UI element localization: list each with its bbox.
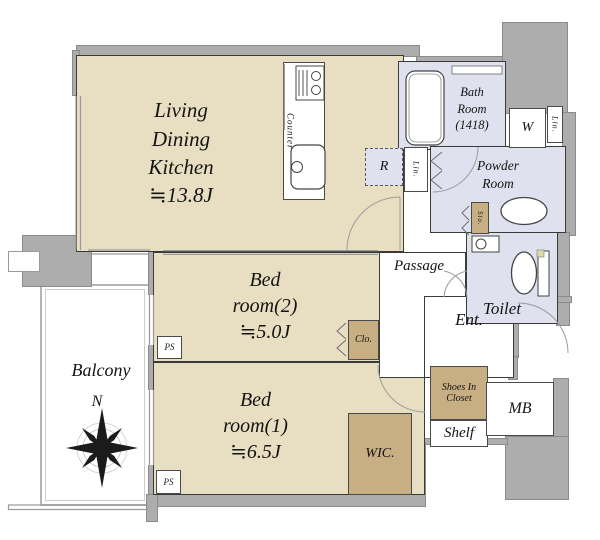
ldk-label: Living Dining Kitchen ≒13.8J (86, 78, 276, 228)
bath-label: Bath Room (1418) (440, 82, 504, 136)
linen-box-right: Lin. (547, 106, 563, 143)
shoes-label-2: Closet (446, 393, 472, 405)
counter-label: Counter (285, 113, 295, 150)
wic-label: WIC. (365, 446, 394, 462)
washer-label: W (522, 120, 534, 136)
meter-box: MB (486, 382, 554, 436)
bedroom1-label: Bed room(1) ≒6.5J (158, 370, 353, 482)
linen-left-label: Lin. (411, 161, 420, 178)
entrance-label: Ent. (432, 308, 506, 332)
washer-box: W (509, 108, 546, 148)
wall-block-bottom-right (505, 436, 569, 500)
wall-bottom (146, 494, 426, 507)
linen-right-label: Lin. (550, 116, 559, 133)
storage-small-box: Sto. (471, 202, 489, 234)
wic-box: WIC. (348, 413, 412, 495)
powder-label: Powder Room (438, 156, 558, 194)
meter-box-label: MB (508, 400, 531, 418)
bedroom2-area: ≒5.0J (240, 319, 291, 345)
storage-small-label: Sto. (476, 211, 484, 226)
passage-label: Passage (378, 255, 460, 277)
refrigerator-box: R (365, 148, 403, 186)
bedroom1-area: ≒6.5J (230, 439, 281, 465)
bedroom2-label: Bed room(2) ≒5.0J (165, 258, 365, 354)
wall-bottom-step (146, 494, 158, 522)
balcony-label: Balcony (55, 358, 147, 382)
ldk-area: ≒13.8J (149, 181, 213, 209)
shoes-in-closet-box: Shoes In Closet (430, 366, 488, 420)
shelf-label: Shelf (444, 425, 474, 442)
shelf-box: Shelf (430, 420, 488, 447)
refrigerator-label: R (380, 159, 389, 175)
linen-box-left: Lin. (404, 147, 428, 192)
shoes-label-1: Shoes In (442, 382, 476, 394)
pillar-notch (8, 251, 40, 272)
floor-plan: Counter R W Lin. Lin. Sto. Clo. WIC. Sho… (0, 0, 600, 540)
kitchen-counter: Counter (283, 62, 325, 200)
wall-mb-right (553, 378, 569, 438)
wall-right-toilet (556, 232, 570, 326)
wall-block-top-right (502, 22, 568, 114)
north-label: N (84, 392, 110, 412)
